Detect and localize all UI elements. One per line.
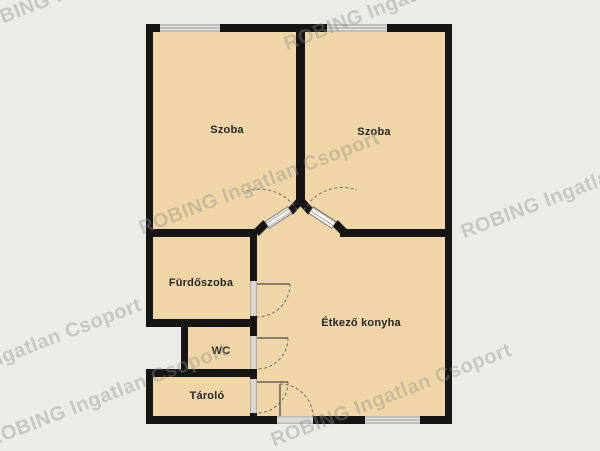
room-label-tarolo: Tároló: [190, 390, 225, 402]
wall-storage-left: [146, 369, 153, 424]
wall-szoba-right-bottom: [340, 229, 445, 237]
wall-bottom-seg3: [420, 416, 452, 424]
wall-wc-bottom: [146, 369, 257, 377]
room-label-furdoszoba: Fürdőszoba: [169, 277, 233, 289]
floorplan-drawing: [0, 0, 600, 451]
window-top-right: [327, 24, 387, 32]
wall-right: [445, 24, 452, 424]
room-label-szoba-right: Szoba: [357, 126, 390, 138]
room-label-szoba-left: Szoba: [210, 124, 243, 136]
wall-left: [146, 24, 153, 327]
wall-room-divider: [296, 31, 305, 203]
wall-bathroom-bottom: [146, 319, 257, 327]
wall-bottom-seg1: [146, 416, 277, 424]
room-label-wc: WC: [212, 345, 231, 357]
window-bottom: [365, 416, 420, 424]
floorplan-image: Szoba Szoba Fürdőszoba WC Tároló Étkező …: [0, 0, 600, 451]
wall-top-seg3: [387, 24, 452, 32]
room-label-etkezo-konyha: Étkező konyha: [321, 317, 401, 329]
wall-central-seg1: [250, 237, 257, 281]
wall-central-seg4: [250, 413, 257, 420]
wall-top-seg2: [220, 24, 327, 32]
window-top-left: [160, 24, 220, 32]
wall-szoba-left-bottom: [146, 229, 257, 237]
wall-bottom-seg2: [313, 416, 365, 424]
